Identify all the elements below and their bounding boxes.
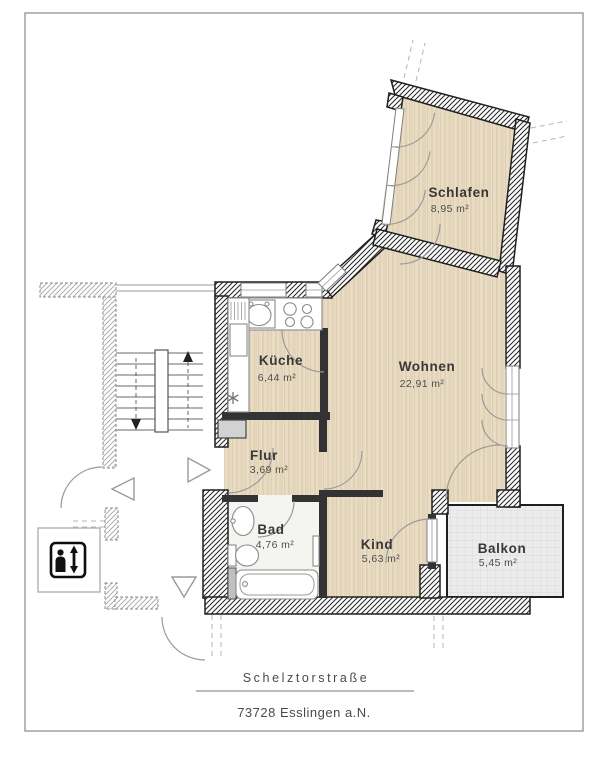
floorplan-drawing: Schlafen 8,95 m² Küche 6,44 m² Wohnen 22… — [0, 0, 607, 757]
room-label-kueche: Küche — [259, 353, 303, 368]
street-name: Schelztorstraße — [243, 671, 370, 685]
toilet-tank — [228, 545, 236, 566]
shaft-box — [218, 420, 246, 438]
room-area-kueche: 6,44 m² — [258, 372, 296, 384]
room-area-bad: 4,76 m² — [256, 539, 294, 551]
room-area-kind: 5,63 m² — [362, 553, 400, 565]
elevator-icon — [51, 543, 85, 577]
kitchen-sink — [247, 305, 271, 326]
room-area-flur: 3,69 m² — [250, 464, 288, 476]
room-label-schlafen: Schlafen — [428, 185, 489, 200]
room-label-kind: Kind — [361, 537, 393, 552]
bathtub-tap — [243, 582, 248, 587]
room-label-bad: Bad — [257, 522, 284, 537]
fridge — [230, 324, 247, 356]
kind-balcony-door-window — [427, 519, 437, 562]
city-name: 73728 Esslingen a.N. — [237, 705, 371, 720]
room-label-flur: Flur — [250, 448, 278, 463]
radiator — [313, 536, 319, 566]
room-area-schlafen: 8,95 m² — [431, 203, 469, 215]
room-label-wohnen: Wohnen — [399, 359, 456, 374]
stair-divider — [155, 350, 168, 432]
room-label-balkon: Balkon — [478, 541, 527, 556]
room-area-balkon: 5,45 m² — [479, 557, 517, 569]
room-area-wohnen: 22,91 m² — [400, 378, 445, 390]
kitchen-window — [241, 283, 322, 297]
bathtub-pillar — [228, 568, 236, 599]
floorplan-page: Schlafen 8,95 m² Küche 6,44 m² Wohnen 22… — [0, 0, 607, 757]
